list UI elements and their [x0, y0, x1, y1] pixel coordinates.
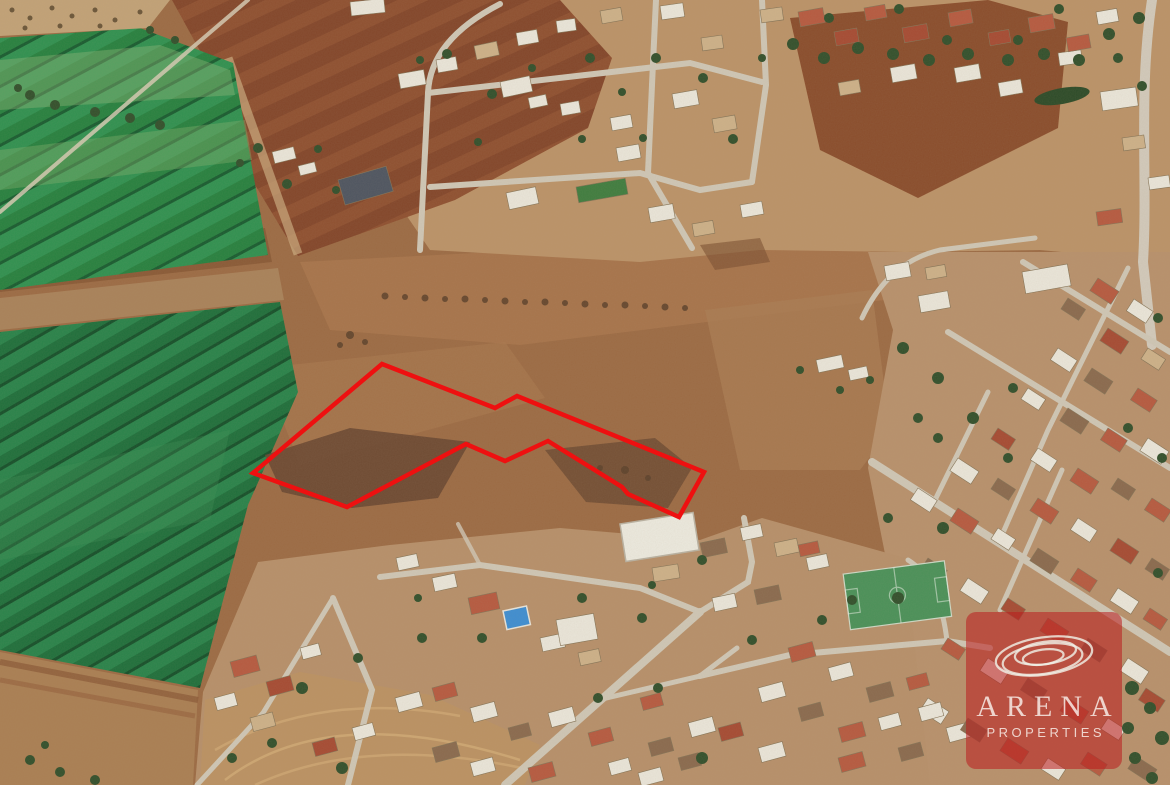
- arena-logo-icon: [986, 628, 1102, 684]
- watermark-tagline: PROPERTIES: [983, 726, 1105, 739]
- watermark-badge: ARENA PROPERTIES: [966, 612, 1122, 769]
- listing-photo: ARENA PROPERTIES: [0, 0, 1170, 785]
- watermark-brand: ARENA: [968, 692, 1119, 722]
